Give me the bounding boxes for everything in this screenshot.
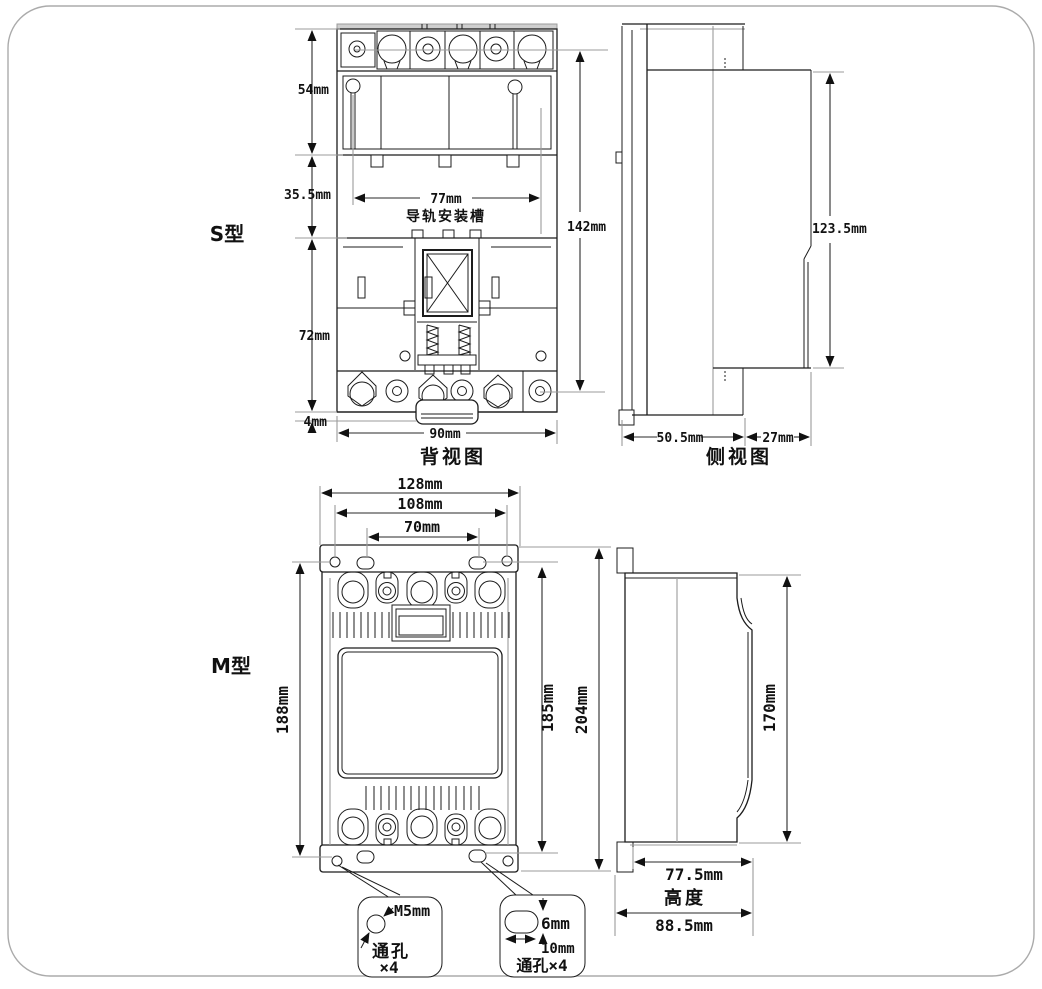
dim-188mm: 188mm	[273, 686, 292, 735]
dim-35-5mm: 35.5mm	[284, 188, 331, 203]
dim-88-5mm: 88.5mm	[655, 916, 713, 935]
m-side-view-dimensions: 170mm 77.5mm 高度 88.5mm	[615, 575, 801, 936]
m-type-label: M型	[211, 654, 251, 678]
dim-54mm: 54mm	[298, 83, 329, 98]
dim-108mm: 108mm	[397, 495, 442, 513]
callout-m5-count: ×4	[379, 958, 398, 977]
callout-slot-10mm: 10mm	[541, 941, 575, 957]
callout-slot-6mm: 6mm	[541, 914, 570, 933]
dim-142mm: 142mm	[567, 220, 606, 235]
drawing-page: S型	[0, 0, 1042, 989]
dim-90mm: 90mm	[429, 427, 460, 442]
s-side-view-dimensions: 123.5mm 50.5mm 27mm 侧视图	[622, 72, 867, 468]
callout-slot-text: 通孔×4	[516, 956, 567, 975]
m-front-view-callouts: M5mm 通孔 ×4 6mm 10mm 通孔×4	[338, 862, 585, 977]
dim-128mm: 128mm	[397, 475, 442, 493]
dim-4mm: 4mm	[304, 415, 328, 430]
dim-72mm: 72mm	[299, 329, 330, 344]
technical-drawing: S型	[0, 0, 1042, 989]
s-side-view-caption: 侧视图	[706, 445, 772, 468]
height-label: 高度	[664, 887, 706, 909]
dim-27mm: 27mm	[762, 431, 793, 446]
s-type-label: S型	[210, 222, 244, 246]
rail-slot-label: 导轨安装槽	[406, 208, 486, 225]
s-back-view-caption: 背视图	[420, 445, 486, 468]
m-front-view-dimensions: 128mm 108mm 70mm 188mm 185mm 204mm	[273, 475, 611, 871]
m-side-view-drawing	[617, 548, 752, 872]
s-side-view-drawing	[616, 24, 811, 425]
dim-77mm: 77mm	[430, 192, 461, 207]
dim-123-5mm: 123.5mm	[812, 222, 867, 237]
dim-170mm: 170mm	[760, 684, 779, 733]
m-front-view-drawing	[320, 545, 518, 872]
dim-185mm: 185mm	[538, 684, 557, 733]
dim-50-5mm: 50.5mm	[657, 431, 704, 446]
callout-m5-dim: M5mm	[394, 902, 430, 920]
dim-204mm: 204mm	[572, 686, 591, 735]
dim-77-5mm: 77.5mm	[665, 865, 723, 884]
dim-70mm: 70mm	[404, 518, 440, 536]
